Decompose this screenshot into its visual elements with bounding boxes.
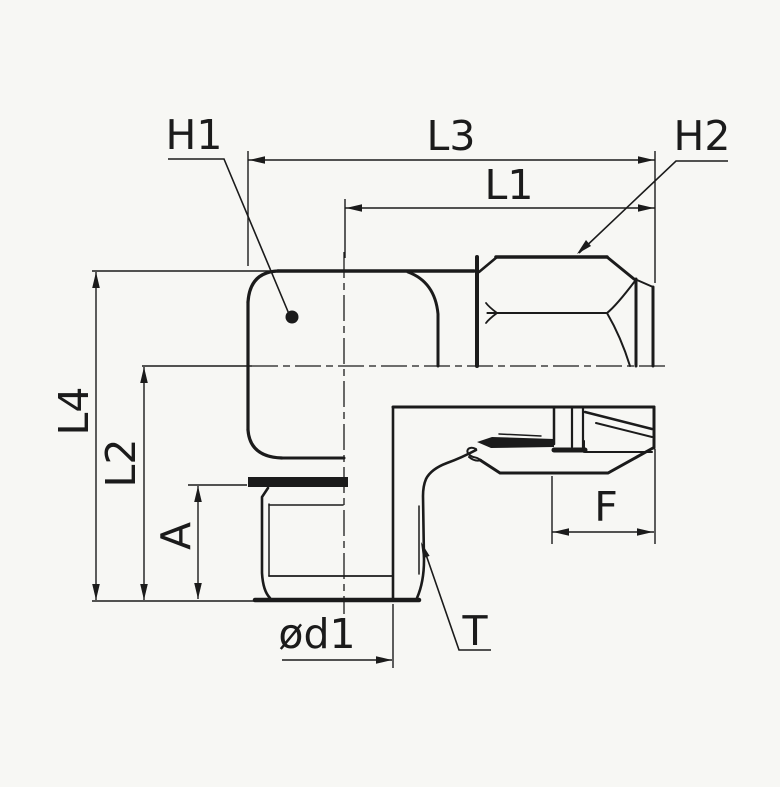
union-nut-upper	[477, 257, 653, 366]
part-outline	[248, 257, 654, 600]
label-l4: L4	[50, 387, 98, 436]
thread-crest-right-runout	[417, 450, 476, 598]
label-h1: H1	[166, 111, 223, 159]
leader-h1	[168, 159, 289, 314]
leader-h2	[579, 161, 728, 253]
nut-chamfer-top-right	[607, 257, 634, 279]
nut-seat-cone-lower	[596, 423, 652, 437]
male-thread-stud	[255, 450, 476, 600]
centerlines	[252, 252, 670, 614]
h2-leader-arrow	[577, 240, 591, 254]
label-f: F	[594, 483, 618, 531]
h1-leader-dot	[286, 311, 299, 324]
technical-drawing-page: H1 L3 H2 L1 L4 L2 A F ød1 T	[0, 0, 780, 787]
label-l3: L3	[427, 112, 476, 160]
label-a: A	[152, 522, 200, 550]
elbow-fitting-technical-drawing: H1 L3 H2 L1 L4 L2 A F ød1 T	[0, 0, 780, 787]
nut-chamfer-top-left	[479, 257, 497, 272]
nut-facet-arc-upper	[607, 281, 635, 313]
nut-facet-arc-lower	[607, 313, 630, 366]
t-leader-arrow	[421, 542, 430, 558]
nut-seat-cone-upper	[585, 412, 652, 429]
thread-shoulder	[248, 477, 348, 487]
body-arm-fillet	[408, 272, 438, 366]
label-t: T	[461, 607, 488, 655]
union-nut-section	[467, 407, 654, 473]
label-l2: L2	[97, 439, 145, 488]
label-h2: H2	[674, 112, 731, 160]
label-phi-d1: ød1	[278, 610, 355, 658]
elbow-body	[248, 271, 654, 600]
dimension-lines	[92, 151, 728, 668]
sleeve-ferrule	[477, 437, 554, 448]
dimension-arrowheads	[92, 156, 654, 664]
label-l1: L1	[485, 161, 534, 209]
